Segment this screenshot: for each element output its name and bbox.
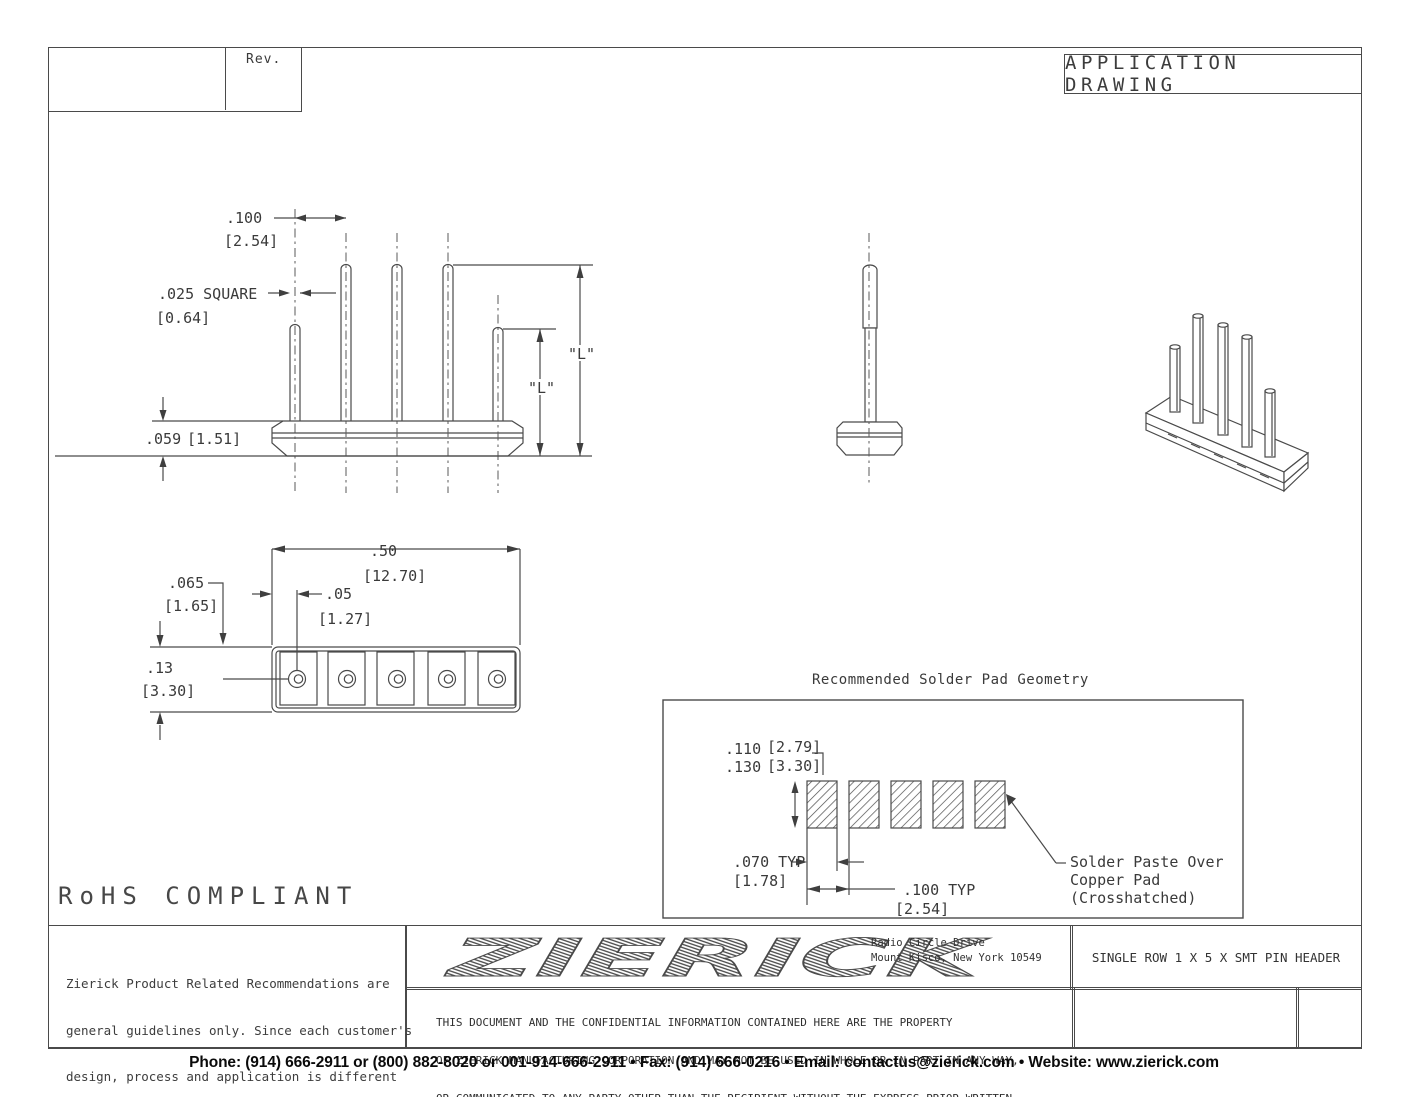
contact-footer: Phone: (914) 666-2911 or (800) 882-8020 … [0,1054,1408,1072]
confidentiality-text: THIS DOCUMENT AND THE CONFIDENTIAL INFOR… [436,992,1019,1097]
dim-pin-offset-mm: [1.27] [318,610,372,628]
solder-pad-title: Recommended Solder Pad Geometry [812,672,1089,688]
dim-pad-width: .070 TYP [733,853,805,871]
drawing-sheet: Rev. APPLICATION DRAWING .100 [2.54] .02… [0,0,1408,1097]
dim-edge-offset-mm: [1.65] [164,597,218,615]
confidentiality-line: OR COMMUNICATED TO ANY PARTY OTHER THAN … [436,1093,1019,1097]
application-drawing-title: APPLICATION DRAWING [1064,54,1362,94]
dim-pin-offset: .05 [325,585,352,603]
pad-note-line1: Solder Paste Over [1070,853,1224,871]
rohs-compliant-label: RoHS COMPLIANT [58,882,358,910]
side-view-drawing [790,225,950,505]
dim-width: .50 [370,542,397,560]
dim-standoff-mm: [1.51] [187,430,241,448]
dim-pad-len: .110 [725,740,761,758]
dim-pad-pitch: .100 TYP [903,881,975,899]
address-line1: Radio Circle Drive [871,936,1042,951]
revision-label: Rev. [246,52,281,67]
pad-note-line3: (Crosshatched) [1070,889,1196,907]
part-title: SINGLE ROW 1 X 5 X SMT PIN HEADER [1070,925,1362,990]
dim-pad-width-mm: [1.78] [733,872,787,890]
dim-height: .13 [146,659,173,677]
revision-box-divider [225,47,226,110]
dim-pitch: .100 [226,209,262,227]
recommendations-line: Zierick Product Related Recommendations … [66,976,412,992]
top-view-drawing: .50 [12.70] .065 [1.65] .05 [1.27] .13 [… [135,535,575,750]
dim-width-mm: [12.70] [363,567,426,585]
dim-pad-len2: .130 [725,758,761,776]
dim-length-short: "L" [528,379,555,397]
dim-height-mm: [3.30] [141,682,195,700]
recommendations-line: general guidelines only. Since each cust… [66,1023,412,1039]
dim-pitch-mm: [2.54] [224,232,278,250]
title-block-empty-cell-1 [1072,987,1299,1048]
dim-square: .025 SQUARE [158,285,257,303]
front-view-drawing: .100 [2.54] .025 SQUARE [0.64] .059 [1.5… [50,195,610,510]
title-block-empty-cell-2 [1296,987,1362,1048]
pad-note-line2: Copper Pad [1070,871,1160,889]
company-address: Radio Circle Drive Mount Kisco, New York… [871,936,1042,966]
recommendations-text: Zierick Product Related Recommendations … [66,945,412,1097]
dim-pad-pitch-mm: [2.54] [895,900,949,918]
dim-standoff: .059 [145,430,181,448]
dim-length-tall: "L" [568,345,595,363]
dim-square-mm: [0.64] [156,309,210,327]
solder-pad-drawing: .110 [2.79] .130 [3.30] .070 TYP [1.78] … [660,695,1250,925]
dim-edge-offset: .065 [168,574,204,592]
isometric-view-drawing [1130,295,1370,510]
dim-pad-len2-mm: [3.30] [767,757,821,775]
confidentiality-line: THIS DOCUMENT AND THE CONFIDENTIAL INFOR… [436,1017,1019,1030]
address-line2: Mount Kisco, New York 10549 [871,951,1042,966]
